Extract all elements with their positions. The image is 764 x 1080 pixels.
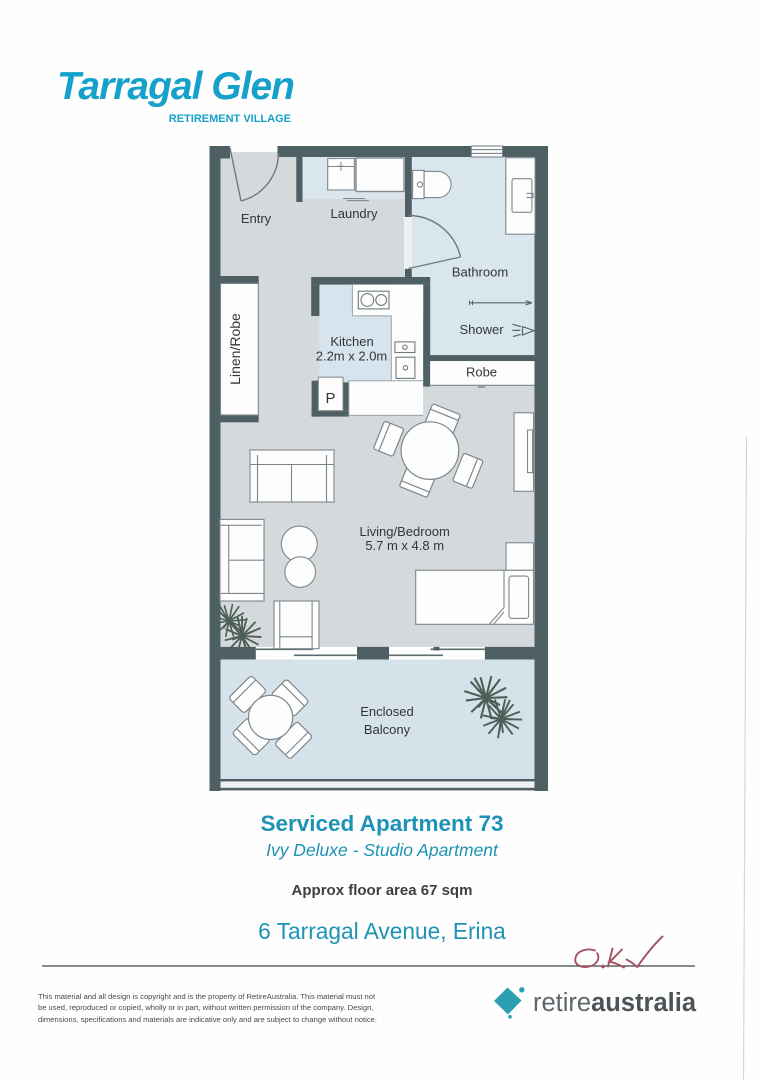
svg-text:5.7 m x 4.8 m: 5.7 m x 4.8 m xyxy=(365,538,444,553)
svg-text:retireaustralia: retireaustralia xyxy=(533,989,697,1017)
svg-text:2.2m x 2.0m: 2.2m x 2.0m xyxy=(316,349,388,364)
svg-text:Balcony: Balcony xyxy=(364,722,411,737)
svg-text:Enclosed: Enclosed xyxy=(360,704,413,719)
svg-text:Kitchen: Kitchen xyxy=(330,334,373,349)
svg-text:Entry: Entry xyxy=(241,211,272,226)
svg-text:Shower: Shower xyxy=(459,322,504,337)
svg-text:Bathroom: Bathroom xyxy=(452,265,508,280)
svg-text:Robe: Robe xyxy=(466,365,497,380)
svg-text:Linen/Robe: Linen/Robe xyxy=(227,313,243,385)
svg-text:P: P xyxy=(325,390,335,407)
svg-text:Laundry: Laundry xyxy=(331,206,378,221)
svg-text:Living/Bedroom: Living/Bedroom xyxy=(360,524,450,539)
